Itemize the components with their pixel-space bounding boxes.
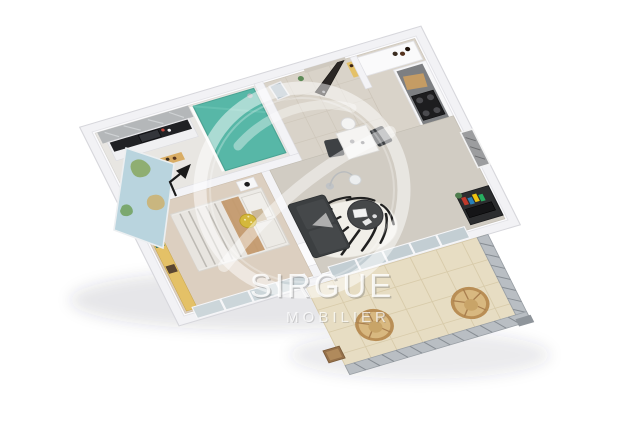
floor-plan-image: one-bedroom apartment with balcony terra… (0, 0, 640, 426)
world-map-poster (114, 148, 174, 248)
floor-plan-3d-render: one-bedroom apartment with balcony terra… (0, 0, 640, 426)
brand-text: SIRGUE (250, 267, 395, 304)
laptop (353, 209, 367, 218)
tagline-text: MOBILIER (286, 309, 390, 326)
